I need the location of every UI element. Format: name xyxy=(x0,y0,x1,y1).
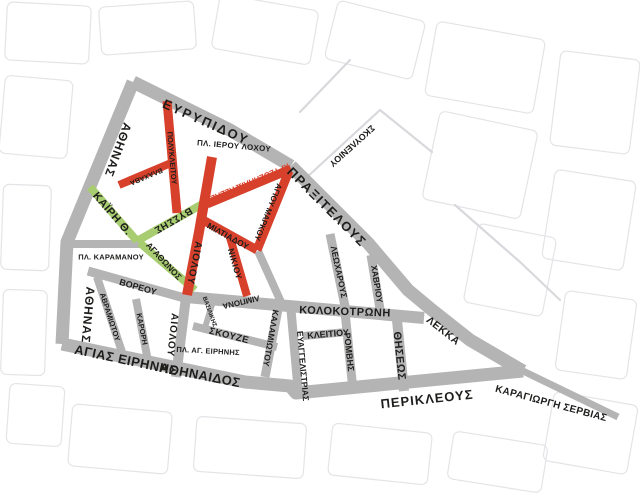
city-block-outline xyxy=(447,431,548,493)
city-block-outline xyxy=(211,0,319,65)
city-block-outline xyxy=(1,184,52,271)
city-block-outline xyxy=(424,21,545,114)
city-block-outline xyxy=(463,223,557,317)
street-label-polykleitou: ΠΟΛΥΚΛΕΙΤΟΥ xyxy=(165,131,179,185)
street-label-skouleniou: ΣΚΟΥΛΕΝΙΟΥ xyxy=(327,123,376,169)
street-kalamiotou-north xyxy=(258,251,281,302)
city-block-outline xyxy=(98,1,196,56)
street-label-pl-karamanou: ΠΛ. ΚΑΡΑΜΑΝΟΥ xyxy=(78,253,144,262)
city-block-outline xyxy=(541,169,636,271)
city-block-outline xyxy=(550,50,640,154)
street-label-avramiotou: ΑΒΡΑΜΙΩΤΟΥ xyxy=(98,292,122,342)
street-label-kairi: ΚΑΪΡΗ Θ. xyxy=(90,189,135,237)
street-label-miltiadou: ΜΙΛΤΙΑΔΟΥ xyxy=(205,220,250,251)
street-label-voreou: ΒΟΡΕΟΥ xyxy=(118,277,158,297)
city-block-outline xyxy=(5,2,92,64)
city-block-outline xyxy=(555,290,637,379)
thin-street-bg-line-3 xyxy=(455,205,560,300)
street-label-skouze: ΣΚΟΥΖΕ xyxy=(208,326,250,347)
city-block-outline xyxy=(328,423,433,485)
city-block-outline xyxy=(422,111,539,220)
thin-street-skouleniou-street xyxy=(306,110,380,178)
street-label-perikleous: ΠΕΡΙΚΛΕΟΥΣ xyxy=(380,387,474,412)
city-block-outline xyxy=(1,289,48,375)
city-block-outline xyxy=(6,383,65,447)
street-label-kolokotroni: ΚΟΛΟΚΟΤΡΩΝΗ xyxy=(299,304,391,319)
street-label-athinaidos: ΑΘΗΝΑΙΔΟΣ xyxy=(158,360,242,390)
street-label-leocharous: ΛΕΩΧΑΡΟΥΣ xyxy=(329,245,350,299)
street-label-theseos: ΘΗΣΕΩΣ xyxy=(390,331,407,381)
thin-street-bg-line-2 xyxy=(300,60,350,112)
street-label-agathonos: ΑΓΑΘΩΝΟΣ xyxy=(144,240,184,282)
street-label-athinas-lower: ΑΘΗΝΑΣ xyxy=(79,286,98,344)
street-label-aiolou-red: ΑΙΟΛΟΥ xyxy=(184,240,203,285)
street-label-pl-ag-eirinis: ΠΛ. ΑΓ. ΕΙΡΗΝΗΣ xyxy=(176,345,240,357)
city-block-outline xyxy=(0,75,73,159)
city-block-outline xyxy=(324,0,426,80)
street-label-karori: ΚΑΡΟΡΗ xyxy=(135,312,150,345)
city-block-outline xyxy=(67,404,172,474)
thin-street-bg-line-1 xyxy=(380,110,432,152)
city-block-outline xyxy=(193,416,307,479)
street-label-romvis: ΡΟΜΒΗΣ xyxy=(342,332,356,372)
street-label-kalamiotou: ΚΑΛΑΜΙΩΤΟΥ xyxy=(261,309,281,368)
street-map: ΕΥΡΥΠΙΔΟΥΠΛ. ΙΕΡΟΥ ΛΟΧΟΥΑΘΗΝΑΣΠΟΛΥΚΛΕΙΤΟ… xyxy=(0,0,640,494)
street-map-svg: ΕΥΡΥΠΙΔΟΥΠΛ. ΙΕΡΟΥ ΛΟΧΟΥΑΘΗΝΑΣΠΟΛΥΚΛΕΙΤΟ… xyxy=(0,0,640,494)
